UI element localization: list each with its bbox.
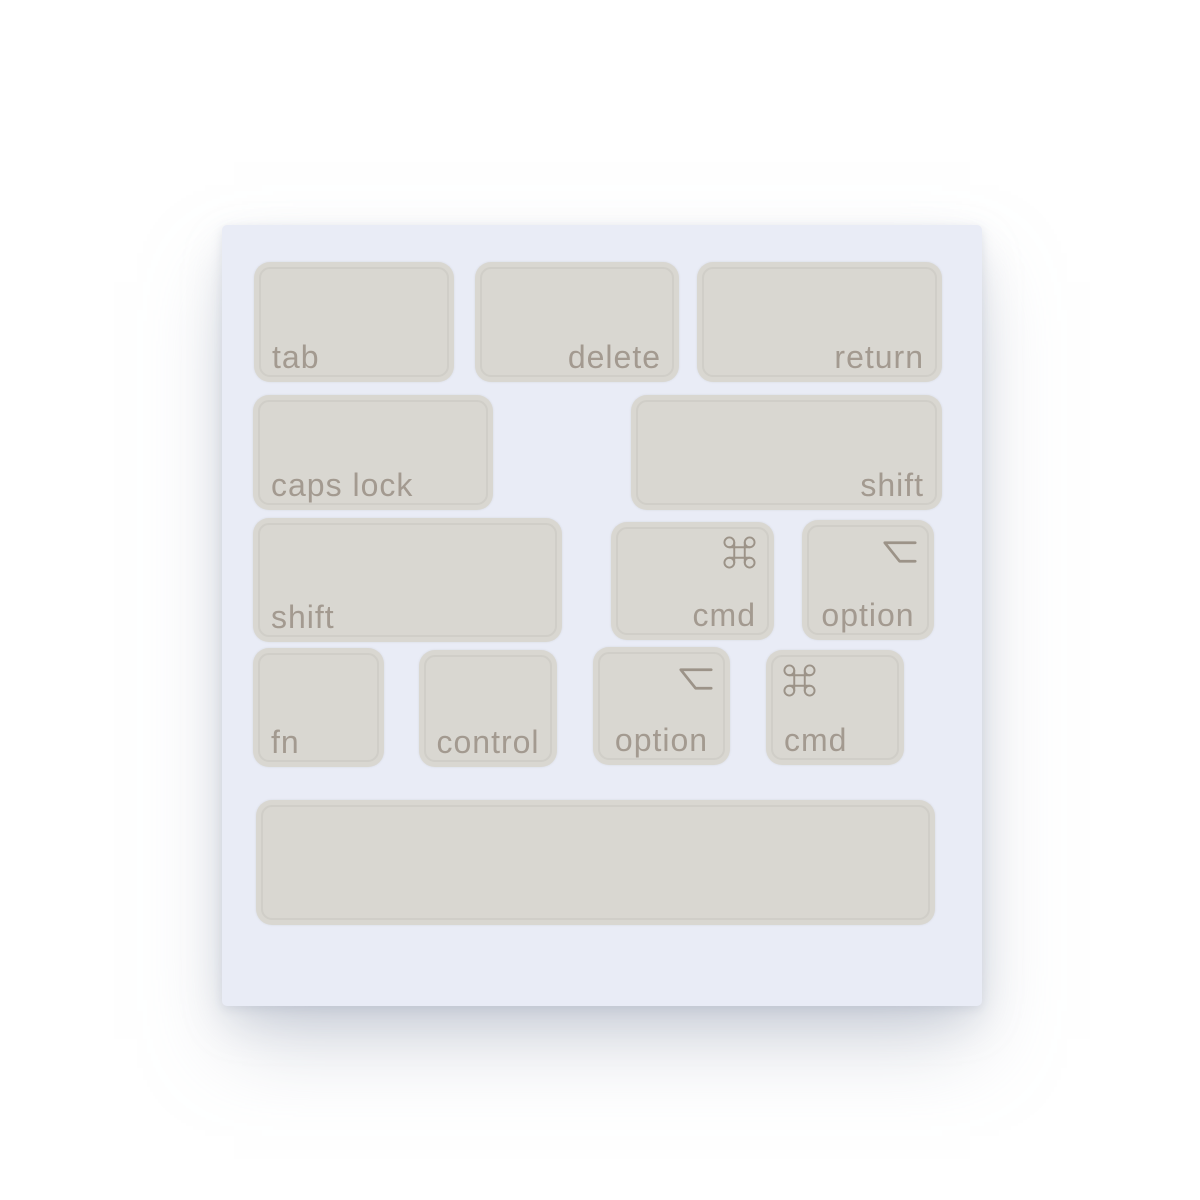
key-label: option bbox=[593, 724, 730, 756]
sticker-key-tab: tab bbox=[254, 262, 454, 382]
sticker-sheet: tabdeletereturncaps lockshiftshift cmd o… bbox=[222, 225, 982, 1006]
key-label: option bbox=[802, 599, 934, 631]
sticker-key-cmd-right: cmd bbox=[611, 522, 774, 640]
key-label: fn bbox=[271, 726, 300, 758]
key-label: delete bbox=[568, 341, 661, 373]
sticker-key-fn: fn bbox=[253, 648, 384, 767]
sticker-key-shift-right: shift bbox=[631, 395, 942, 510]
option-icon bbox=[667, 660, 713, 694]
sticker-key-option-left: option bbox=[593, 647, 730, 765]
key-label: tab bbox=[272, 341, 319, 373]
command-icon bbox=[782, 663, 817, 698]
sticker-key-delete: delete bbox=[475, 262, 679, 382]
sticker-key-spacebar bbox=[256, 800, 935, 925]
key-label: shift bbox=[860, 469, 924, 501]
key-label: cmd bbox=[693, 599, 756, 631]
sticker-key-shift-left: shift bbox=[253, 518, 562, 642]
sticker-key-cmd-left: cmd bbox=[766, 650, 904, 765]
key-label: control bbox=[419, 726, 557, 758]
key-label: shift bbox=[271, 601, 335, 633]
sticker-key-option-right: option bbox=[802, 520, 934, 640]
option-icon bbox=[871, 533, 917, 567]
sticker-key-caps-lock: caps lock bbox=[253, 395, 493, 510]
key-label: cmd bbox=[784, 724, 847, 756]
sticker-key-return: return bbox=[697, 262, 942, 382]
key-label: return bbox=[834, 341, 924, 373]
key-label: caps lock bbox=[271, 469, 413, 501]
command-icon bbox=[722, 535, 757, 570]
sticker-key-control: control bbox=[419, 650, 557, 767]
product-photo-background: tabdeletereturncaps lockshiftshift cmd o… bbox=[0, 0, 1200, 1200]
